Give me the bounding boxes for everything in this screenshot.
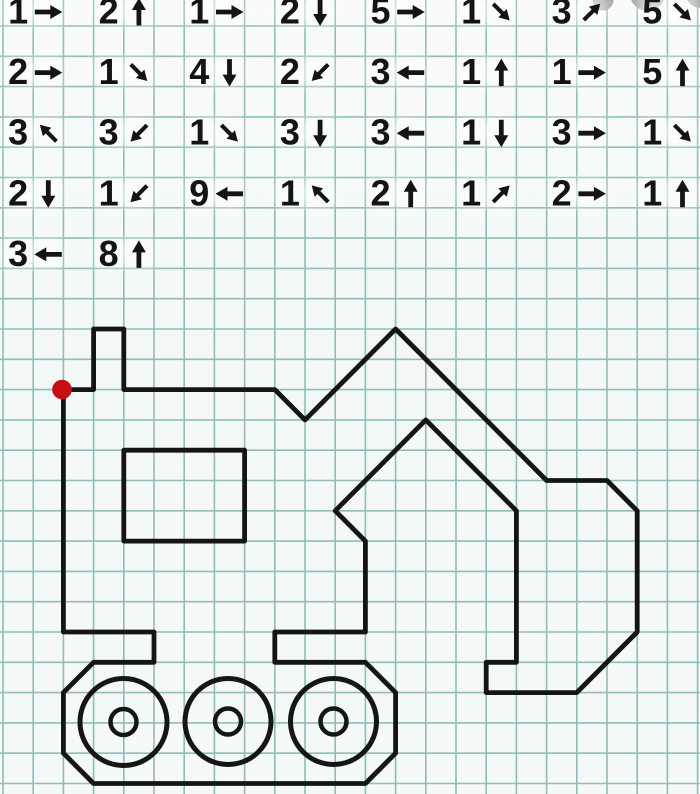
svg-text:3: 3 xyxy=(99,112,119,153)
svg-text:2: 2 xyxy=(99,0,119,32)
svg-text:3: 3 xyxy=(370,112,390,153)
svg-text:2: 2 xyxy=(8,51,28,92)
svg-text:2: 2 xyxy=(280,51,300,92)
svg-text:5: 5 xyxy=(642,51,662,92)
svg-text:2: 2 xyxy=(552,172,572,213)
svg-text:2: 2 xyxy=(280,0,300,32)
svg-text:5: 5 xyxy=(370,0,390,32)
svg-text:1: 1 xyxy=(642,112,662,153)
svg-text:1: 1 xyxy=(99,172,119,213)
svg-text:3: 3 xyxy=(552,0,572,32)
svg-text:1: 1 xyxy=(461,172,481,213)
svg-text:1: 1 xyxy=(189,112,209,153)
svg-text:1: 1 xyxy=(280,172,300,213)
svg-text:3: 3 xyxy=(8,112,28,153)
svg-text:1: 1 xyxy=(99,51,119,92)
svg-text:5: 5 xyxy=(642,0,662,32)
svg-text:8: 8 xyxy=(99,233,119,274)
svg-text:4: 4 xyxy=(189,51,209,92)
svg-text:2: 2 xyxy=(8,172,28,213)
svg-text:1: 1 xyxy=(642,172,662,213)
svg-text:1: 1 xyxy=(461,0,481,32)
svg-text:9: 9 xyxy=(189,172,209,213)
svg-text:3: 3 xyxy=(8,233,28,274)
svg-text:3: 3 xyxy=(370,51,390,92)
svg-text:3: 3 xyxy=(280,112,300,153)
svg-text:1: 1 xyxy=(8,0,28,32)
svg-text:2: 2 xyxy=(370,172,390,213)
svg-text:1: 1 xyxy=(461,112,481,153)
svg-text:1: 1 xyxy=(189,0,209,32)
svg-text:1: 1 xyxy=(552,51,572,92)
svg-text:3: 3 xyxy=(552,112,572,153)
svg-text:1: 1 xyxy=(461,51,481,92)
